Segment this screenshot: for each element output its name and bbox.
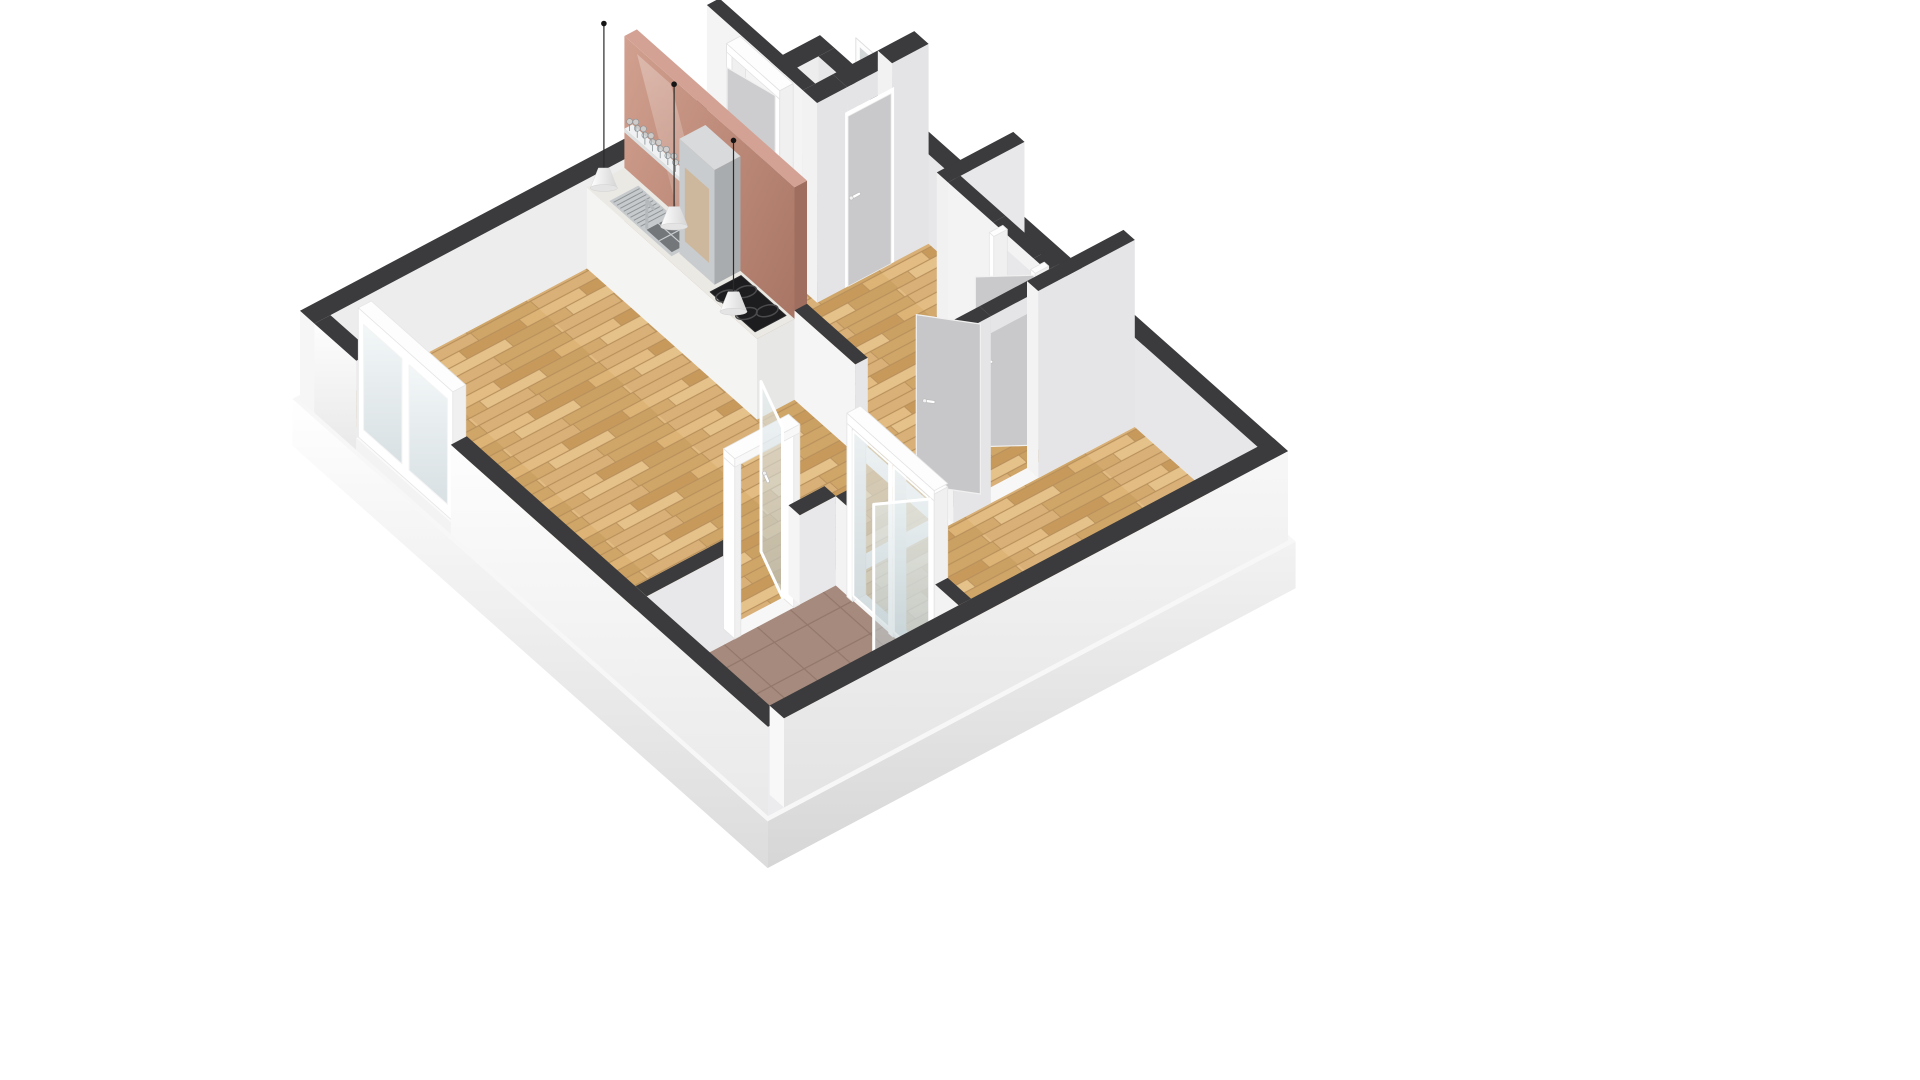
- wall-bathroom-south-a: [803, 74, 847, 302]
- door-bathroom-closed: [848, 94, 891, 287]
- wall-living-balcony-b: [789, 486, 836, 604]
- floorplan-render: [0, 0, 1920, 1080]
- balcony-door-jamb: [724, 447, 741, 639]
- floorplan-canvas: [0, 0, 1920, 1080]
